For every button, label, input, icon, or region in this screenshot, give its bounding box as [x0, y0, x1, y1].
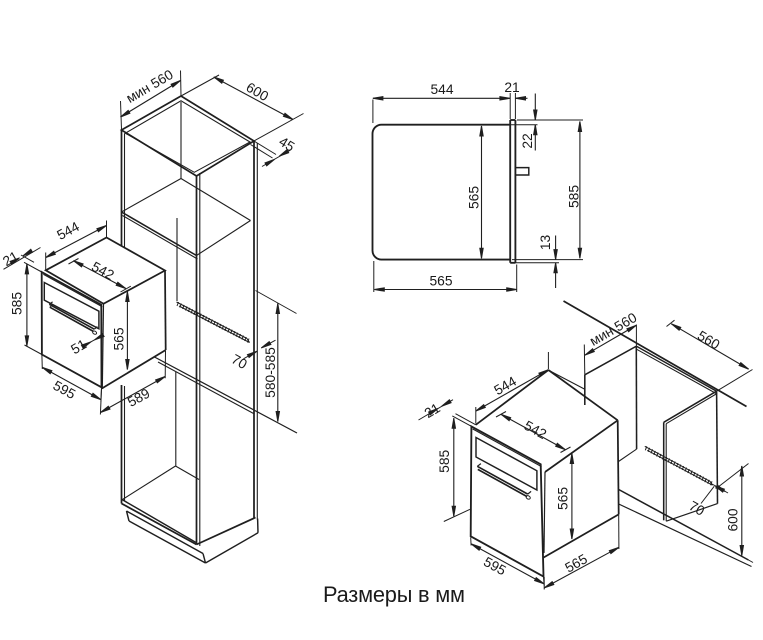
svg-text:565: 565 [556, 487, 571, 510]
svg-text:580-585: 580-585 [263, 347, 278, 398]
svg-text:600: 600 [726, 508, 741, 531]
svg-text:22: 22 [520, 133, 535, 148]
svg-text:21: 21 [504, 80, 519, 95]
svg-text:565: 565 [467, 186, 482, 209]
svg-text:565: 565 [429, 274, 452, 289]
svg-text:Размеры в мм: Размеры в мм [323, 582, 465, 607]
svg-text:585: 585 [437, 449, 452, 472]
svg-text:585: 585 [10, 292, 25, 315]
svg-text:565: 565 [112, 327, 127, 350]
svg-text:13: 13 [538, 235, 553, 251]
svg-text:585: 585 [567, 185, 582, 208]
svg-text:544: 544 [430, 82, 453, 97]
